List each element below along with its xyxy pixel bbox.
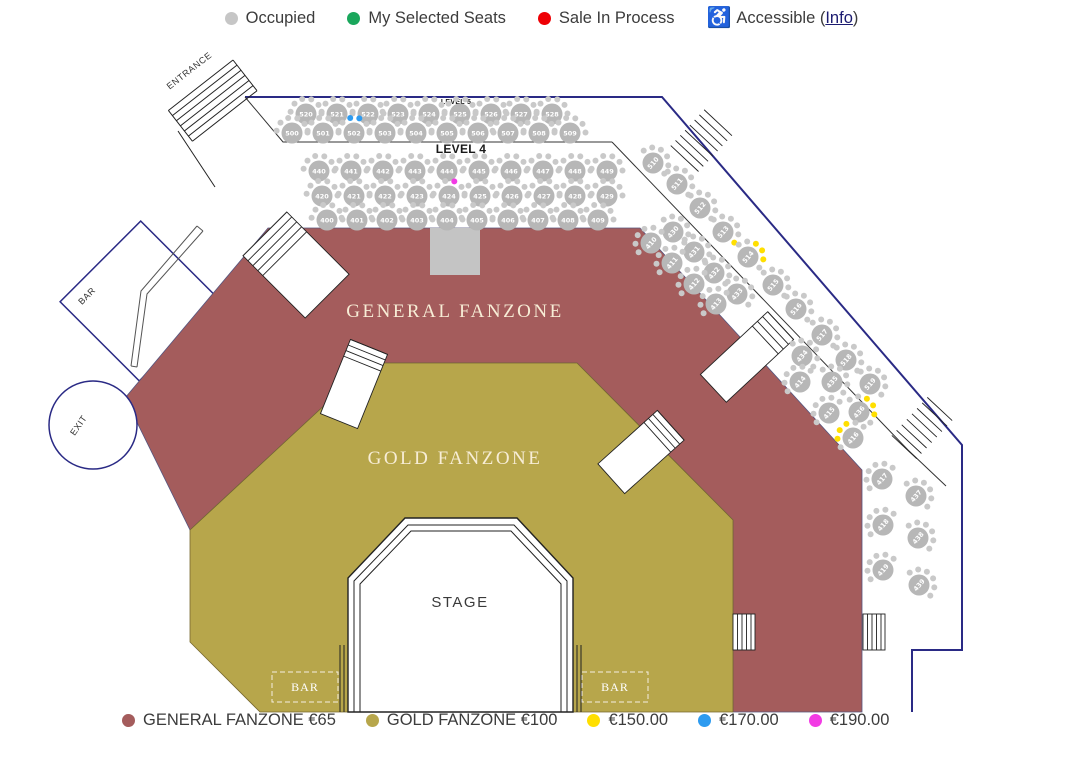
seat-415-2 bbox=[813, 402, 819, 408]
seat-443-0 bbox=[397, 166, 403, 172]
seat-425-0 bbox=[462, 191, 468, 197]
seat-514-1 bbox=[744, 239, 750, 245]
seat-447-0 bbox=[525, 166, 531, 172]
seat-424-2 bbox=[442, 178, 448, 184]
seat-440-1 bbox=[305, 158, 311, 164]
seat-431-3 bbox=[705, 242, 711, 248]
seat-427-4 bbox=[554, 184, 560, 190]
legend-item-gold-fanzone: GOLD FANZONE €100 bbox=[366, 711, 558, 730]
seat-511-0 bbox=[665, 169, 671, 175]
seat-413-1 bbox=[698, 302, 704, 308]
seat-519-2 bbox=[875, 368, 881, 374]
seat-447-2 bbox=[536, 153, 542, 159]
seat-409-1 bbox=[584, 207, 590, 213]
seat-411-5 bbox=[680, 249, 686, 255]
seat-504-2 bbox=[409, 115, 415, 121]
seat-418-2 bbox=[867, 514, 873, 520]
seat-410-2 bbox=[635, 232, 641, 238]
platform bbox=[430, 228, 480, 275]
seat-429-1 bbox=[593, 183, 599, 189]
seat-430-1 bbox=[669, 214, 675, 220]
seat-420-1 bbox=[308, 183, 314, 189]
seat-437-1 bbox=[912, 478, 918, 484]
stage-label: STAGE bbox=[431, 594, 488, 611]
seat-424-3[interactable] bbox=[451, 178, 457, 184]
seat-425-3 bbox=[482, 178, 488, 184]
legend-dot-price-170 bbox=[698, 714, 711, 727]
seat-403-1 bbox=[403, 207, 409, 213]
seat-416-4 bbox=[852, 420, 858, 426]
seat-440-4 bbox=[329, 159, 335, 165]
seat-501-4 bbox=[333, 121, 339, 127]
seat-402-3 bbox=[389, 202, 395, 208]
table-number-408: 408 bbox=[561, 216, 575, 224]
table-number-504: 504 bbox=[409, 129, 423, 137]
seat-418-4 bbox=[882, 507, 888, 513]
seat-404-0 bbox=[429, 215, 435, 221]
seat-516-3 bbox=[807, 299, 813, 305]
seat-415-0 bbox=[814, 419, 820, 425]
legend-dot-my-selected-seats bbox=[347, 12, 360, 25]
seat-448-1 bbox=[561, 158, 567, 164]
seat-435-1 bbox=[828, 364, 834, 370]
seat-401-3 bbox=[359, 202, 365, 208]
seat-433-2 bbox=[742, 278, 748, 284]
seat-510-0 bbox=[641, 148, 647, 154]
seat-433-3 bbox=[748, 284, 754, 290]
seat-406-4 bbox=[518, 208, 524, 214]
seat-430-3 bbox=[684, 222, 690, 228]
seat-510-2 bbox=[658, 147, 664, 153]
seat-501-0 bbox=[305, 128, 311, 134]
seat-510-1 bbox=[649, 145, 655, 151]
seat-432-2 bbox=[719, 257, 725, 263]
seat-522-3 bbox=[370, 96, 376, 102]
seat-505-0 bbox=[429, 128, 435, 134]
seat-431-0 bbox=[682, 237, 688, 243]
stairs-corridor bbox=[892, 397, 952, 458]
table-422: 422 bbox=[367, 178, 404, 207]
seat-405-0 bbox=[459, 215, 465, 221]
seat-428-2 bbox=[568, 178, 574, 184]
seat-432-1 bbox=[710, 255, 716, 261]
seat-445-2 bbox=[472, 153, 478, 159]
seat-510-4 bbox=[665, 162, 671, 168]
seat-429-4 bbox=[617, 184, 623, 190]
seat-405-3 bbox=[479, 202, 485, 208]
seat-434-4 bbox=[814, 355, 820, 361]
seat-423-4 bbox=[427, 184, 433, 190]
seat-416-2[interactable] bbox=[837, 427, 843, 433]
seat-500-1 bbox=[278, 120, 284, 126]
accessible-info-link[interactable]: Info bbox=[825, 9, 853, 28]
seat-504-3 bbox=[418, 115, 424, 121]
seat-519-5 bbox=[878, 392, 884, 398]
seat-528-2 bbox=[545, 96, 551, 102]
seat-436-4[interactable] bbox=[871, 411, 877, 417]
table-number-425: 425 bbox=[473, 192, 487, 200]
seat-416-1[interactable] bbox=[835, 436, 841, 442]
bar-bottom-right-label: BAR bbox=[601, 680, 629, 694]
seat-410-1 bbox=[633, 241, 639, 247]
seat-524-4 bbox=[439, 102, 445, 108]
seat-509-3 bbox=[572, 115, 578, 121]
seat-440-2 bbox=[312, 153, 318, 159]
seat-420-3 bbox=[324, 178, 330, 184]
seat-422-4 bbox=[395, 184, 401, 190]
table-number-400: 400 bbox=[320, 216, 334, 224]
table-517: 517 bbox=[810, 317, 841, 349]
seat-401-4 bbox=[367, 208, 373, 214]
seat-425-4 bbox=[490, 184, 496, 190]
seat-403-2 bbox=[410, 202, 416, 208]
seat-524-2 bbox=[422, 96, 428, 102]
seat-426-4 bbox=[522, 184, 528, 190]
seat-408-0 bbox=[550, 215, 556, 221]
seat-418-1 bbox=[865, 523, 871, 529]
seat-437-2 bbox=[921, 480, 927, 486]
seat-409-3 bbox=[600, 202, 606, 208]
seat-502-2[interactable] bbox=[347, 115, 353, 121]
seat-411-3 bbox=[662, 246, 668, 252]
table-439: 439 bbox=[907, 567, 938, 599]
seat-514-4[interactable] bbox=[760, 256, 766, 262]
seat-515-0 bbox=[761, 270, 767, 276]
table-number-506: 506 bbox=[471, 129, 485, 137]
seat-518-3 bbox=[857, 350, 863, 356]
seat-438-3 bbox=[929, 528, 935, 534]
table-number-527: 527 bbox=[514, 110, 528, 118]
seat-504-1 bbox=[402, 120, 408, 126]
seat-422-1 bbox=[371, 183, 377, 189]
seat-407-0 bbox=[520, 215, 526, 221]
seat-441-3 bbox=[353, 153, 359, 159]
table-number-420: 420 bbox=[315, 192, 329, 200]
seat-526-0 bbox=[473, 109, 479, 115]
stairs-bottom-left bbox=[733, 614, 755, 650]
seat-429-5 bbox=[620, 193, 626, 199]
table-number-423: 423 bbox=[410, 192, 424, 200]
seat-513-3 bbox=[734, 222, 740, 228]
seat-423-3 bbox=[419, 178, 425, 184]
table-437: 437 bbox=[904, 478, 935, 510]
seat-420-2 bbox=[315, 178, 321, 184]
seat-436-3[interactable] bbox=[870, 402, 876, 408]
seat-424-4 bbox=[459, 184, 465, 190]
seat-512-1 bbox=[696, 190, 702, 196]
seat-414-0 bbox=[785, 388, 791, 394]
seat-421-3 bbox=[356, 178, 362, 184]
seat-525-3 bbox=[462, 96, 468, 102]
seat-417-1 bbox=[864, 477, 870, 483]
seat-435-4 bbox=[844, 381, 850, 387]
seat-445-3 bbox=[481, 153, 487, 159]
seat-502-4 bbox=[364, 121, 370, 127]
seat-502-0 bbox=[336, 128, 342, 134]
table-number-445: 445 bbox=[472, 167, 486, 175]
seat-511-4 bbox=[689, 183, 695, 189]
table-number-405: 405 bbox=[470, 216, 484, 224]
seat-428-4 bbox=[585, 184, 591, 190]
seat-500-0 bbox=[274, 128, 280, 134]
table-number-403: 403 bbox=[410, 216, 424, 224]
table-number-422: 422 bbox=[378, 192, 392, 200]
seat-505-4 bbox=[457, 121, 463, 127]
seat-403-4 bbox=[427, 208, 433, 214]
seat-430-0 bbox=[661, 217, 667, 223]
seat-517-4 bbox=[834, 334, 840, 340]
legend-item-occupied: Occupied bbox=[225, 9, 316, 28]
seat-410-3 bbox=[641, 226, 647, 232]
seat-440-0 bbox=[301, 166, 307, 172]
seat-430-2 bbox=[678, 216, 684, 222]
seat-506-2 bbox=[471, 115, 477, 121]
legend-item-my-selected-seats: My Selected Seats bbox=[347, 9, 506, 28]
seat-522-1 bbox=[354, 101, 360, 107]
table-417: 417 bbox=[864, 461, 896, 492]
seat-520-0 bbox=[288, 109, 294, 115]
seat-512-3 bbox=[711, 198, 717, 204]
seat-446-1 bbox=[497, 158, 503, 164]
seat-502-3[interactable] bbox=[356, 115, 362, 121]
seat-400-1 bbox=[313, 207, 319, 213]
seat-444-3 bbox=[449, 153, 455, 159]
seat-523-0 bbox=[380, 109, 386, 115]
seat-409-5 bbox=[611, 217, 617, 223]
seat-517-3 bbox=[833, 325, 839, 331]
seat-431-2 bbox=[699, 236, 705, 242]
seat-414-5 bbox=[808, 368, 814, 374]
table-448: 448 bbox=[557, 153, 594, 182]
table-number-440: 440 bbox=[312, 167, 326, 175]
seat-503-3 bbox=[387, 115, 393, 121]
table-number-500: 500 bbox=[285, 129, 299, 137]
seat-509-2 bbox=[563, 115, 569, 121]
seat-514-2[interactable] bbox=[753, 241, 759, 247]
seat-415-3 bbox=[819, 396, 825, 402]
seat-433-4 bbox=[749, 293, 755, 299]
seat-434-1 bbox=[798, 338, 804, 344]
seat-417-4 bbox=[881, 461, 887, 467]
legend-dot-sale-in-process bbox=[538, 12, 551, 25]
seat-404-2 bbox=[440, 202, 446, 208]
seat-445-4 bbox=[489, 159, 495, 165]
gold-fanzone-label: GOLD FANZONE bbox=[368, 448, 543, 469]
legend-label-occupied: Occupied bbox=[246, 9, 316, 28]
seat-505-1 bbox=[433, 120, 439, 126]
seat-436-1 bbox=[855, 394, 861, 400]
table-428: 428 bbox=[557, 178, 594, 207]
seat-528-0 bbox=[534, 109, 540, 115]
seat-507-4 bbox=[518, 121, 524, 127]
table-513: 513 bbox=[711, 214, 742, 246]
seat-422-3 bbox=[387, 178, 393, 184]
seat-433-1 bbox=[733, 276, 739, 282]
table-438: 438 bbox=[906, 520, 937, 552]
table-number-508: 508 bbox=[532, 129, 546, 137]
seat-411-0 bbox=[657, 269, 663, 275]
seat-446-3 bbox=[513, 153, 519, 159]
seat-507-3 bbox=[510, 115, 516, 121]
seat-400-0 bbox=[309, 215, 315, 221]
table-number-446: 446 bbox=[504, 167, 518, 175]
seat-417-3 bbox=[872, 462, 878, 468]
seat-412-4 bbox=[693, 266, 699, 272]
seat-514-5 bbox=[756, 265, 762, 271]
legend-dot-price-190 bbox=[809, 714, 822, 727]
table-number-522: 522 bbox=[361, 110, 375, 118]
seat-509-5 bbox=[583, 130, 589, 136]
seat-516-2 bbox=[801, 293, 807, 299]
seat-514-3[interactable] bbox=[759, 247, 765, 253]
seat-444-4 bbox=[457, 159, 463, 165]
seat-437-4 bbox=[928, 495, 934, 501]
seat-512-4 bbox=[712, 207, 718, 213]
seat-503-4 bbox=[395, 121, 401, 127]
seat-432-3 bbox=[725, 263, 731, 269]
seat-527-4 bbox=[531, 102, 537, 108]
table-426: 426 bbox=[494, 178, 531, 207]
seat-439-5 bbox=[927, 593, 933, 599]
seat-426-0 bbox=[494, 191, 500, 197]
seat-427-3 bbox=[546, 178, 552, 184]
seat-438-0 bbox=[906, 523, 912, 529]
seat-441-1 bbox=[337, 158, 343, 164]
seat-427-2 bbox=[537, 178, 543, 184]
seat-413-4 bbox=[715, 286, 721, 292]
legend-label-price-150: €150.00 bbox=[608, 711, 668, 730]
legend-top: OccupiedMy Selected SeatsSale In Process… bbox=[0, 8, 1083, 28]
seat-426-3 bbox=[514, 178, 520, 184]
seat-401-2 bbox=[350, 202, 356, 208]
seat-414-4 bbox=[799, 364, 805, 370]
seat-422-2 bbox=[378, 178, 384, 184]
seat-442-0 bbox=[365, 166, 371, 172]
seat-512-0 bbox=[688, 193, 694, 199]
seat-412-5 bbox=[702, 270, 708, 276]
seat-528-4 bbox=[562, 102, 568, 108]
seat-506-1 bbox=[464, 120, 470, 126]
table-440: 440 bbox=[301, 153, 338, 182]
seat-517-0 bbox=[810, 320, 816, 326]
seat-523-4 bbox=[408, 102, 414, 108]
seat-523-2 bbox=[391, 96, 397, 102]
table-423: 423 bbox=[399, 178, 436, 207]
seat-405-4 bbox=[487, 208, 493, 214]
seat-442-2 bbox=[376, 153, 382, 159]
seat-503-0 bbox=[367, 128, 373, 134]
seat-404-1 bbox=[433, 207, 439, 213]
seat-438-5 bbox=[926, 546, 932, 552]
seat-431-1 bbox=[690, 234, 696, 240]
exit-area bbox=[49, 381, 137, 469]
seat-437-0 bbox=[904, 481, 910, 487]
seat-522-4 bbox=[378, 102, 384, 108]
seat-443-2 bbox=[408, 153, 414, 159]
seat-436-5 bbox=[867, 420, 873, 426]
seat-521-3 bbox=[339, 96, 345, 102]
seat-448-4 bbox=[585, 159, 591, 165]
seat-421-1 bbox=[340, 183, 346, 189]
legend-label-price-170: €170.00 bbox=[719, 711, 779, 730]
seat-500-3 bbox=[294, 115, 300, 121]
seat-447-4 bbox=[553, 159, 559, 165]
table-447: 447 bbox=[525, 153, 562, 182]
seat-511-3 bbox=[688, 174, 694, 180]
seat-520-3 bbox=[308, 96, 314, 102]
legend-bottom: GENERAL FANZONE €65GOLD FANZONE €100€150… bbox=[122, 711, 889, 730]
seat-433-5 bbox=[745, 302, 751, 308]
table-number-441: 441 bbox=[344, 167, 358, 175]
seat-449-3 bbox=[609, 153, 615, 159]
seat-503-2 bbox=[378, 115, 384, 121]
seat-416-5 bbox=[861, 424, 867, 430]
seat-444-0 bbox=[429, 166, 435, 172]
seat-515-4 bbox=[785, 284, 791, 290]
seat-435-0 bbox=[820, 367, 826, 373]
table-405: 405 bbox=[459, 202, 496, 231]
seat-415-1 bbox=[811, 411, 817, 417]
seat-407-1 bbox=[524, 207, 530, 213]
seat-448-2 bbox=[568, 153, 574, 159]
table-414: 414 bbox=[782, 364, 814, 395]
seat-425-1 bbox=[466, 183, 472, 189]
seat-425-2 bbox=[473, 178, 479, 184]
table-number-404: 404 bbox=[440, 216, 454, 224]
seat-438-1 bbox=[914, 520, 920, 526]
seat-506-0 bbox=[460, 128, 466, 134]
seat-525-1 bbox=[446, 101, 452, 107]
seat-436-2[interactable] bbox=[864, 396, 870, 402]
seat-515-2 bbox=[778, 269, 784, 275]
seat-507-2 bbox=[501, 115, 507, 121]
seat-415-5 bbox=[837, 399, 843, 405]
table-number-525: 525 bbox=[453, 110, 467, 118]
seat-518-0 bbox=[834, 345, 840, 351]
seat-508-3 bbox=[541, 115, 547, 121]
seat-421-4 bbox=[364, 184, 370, 190]
seat-443-1 bbox=[401, 158, 407, 164]
seat-509-1 bbox=[556, 120, 562, 126]
seat-402-1 bbox=[373, 207, 379, 213]
seat-423-2 bbox=[410, 178, 416, 184]
seat-421-0 bbox=[336, 191, 342, 197]
legend-label-general-fanzone: GENERAL FANZONE €65 bbox=[143, 711, 336, 730]
seat-521-4 bbox=[347, 102, 353, 108]
seat-517-1 bbox=[818, 317, 824, 323]
seat-518-2 bbox=[851, 344, 857, 350]
seat-501-2 bbox=[316, 115, 322, 121]
seat-500-2 bbox=[285, 115, 291, 121]
seat-513-0 bbox=[711, 217, 717, 223]
seat-428-3 bbox=[577, 178, 583, 184]
seat-427-0 bbox=[526, 191, 532, 197]
seat-446-4 bbox=[521, 159, 527, 165]
table-436: 436 bbox=[847, 394, 878, 426]
seat-525-0 bbox=[442, 109, 448, 115]
table-443: 443 bbox=[397, 153, 434, 182]
seat-521-2 bbox=[330, 96, 336, 102]
seat-419-1 bbox=[865, 568, 871, 574]
seat-416-3[interactable] bbox=[843, 421, 849, 427]
seat-429-2 bbox=[600, 178, 606, 184]
seat-412-0 bbox=[679, 290, 685, 296]
seat-434-3 bbox=[813, 346, 819, 352]
seat-449-2 bbox=[600, 153, 606, 159]
seat-434-0 bbox=[790, 341, 796, 347]
table-number-426: 426 bbox=[505, 192, 519, 200]
table-number-507: 507 bbox=[501, 129, 515, 137]
